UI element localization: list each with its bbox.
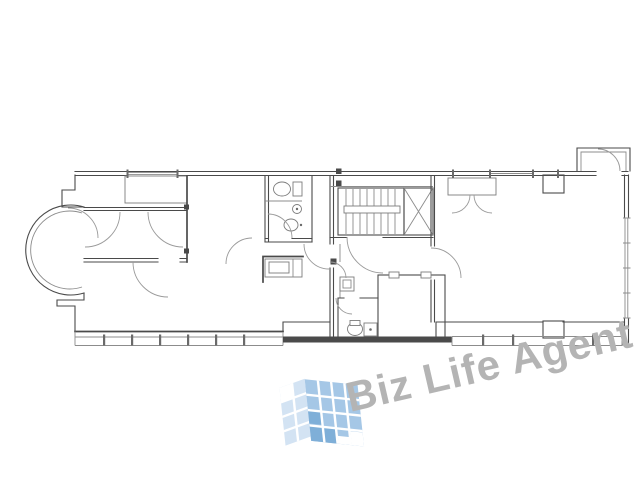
pillar-top xyxy=(543,175,564,193)
elevator xyxy=(404,188,433,235)
window-right-wall xyxy=(623,218,631,318)
round-bay-room xyxy=(26,205,98,295)
wardrobe xyxy=(125,176,187,203)
stair-landing xyxy=(344,206,400,213)
core-bottom-wall xyxy=(283,337,452,343)
floor-plan-drawing: Biz Life Agent xyxy=(0,0,640,480)
wc xyxy=(336,298,378,338)
stair-core xyxy=(283,169,452,343)
living-room-door-arc xyxy=(226,238,252,264)
washstand-icon xyxy=(340,277,354,291)
floor-plan-page: Biz Life Agent xyxy=(0,0,640,480)
entry-door-arc xyxy=(431,248,461,278)
kitchen-counter xyxy=(263,257,303,283)
watermark: Biz Life Agent xyxy=(279,309,637,454)
toilet-icon xyxy=(274,182,291,196)
unit-divider-wall xyxy=(304,176,337,336)
bathroom xyxy=(265,176,312,242)
balcony-top-right xyxy=(577,148,630,171)
right-closet xyxy=(448,178,496,213)
staircase xyxy=(338,188,404,235)
stair-door-arc xyxy=(347,237,383,273)
watermark-text: Biz Life Agent xyxy=(341,309,637,421)
bidet-icon xyxy=(284,219,298,231)
kitchen-sink-icon xyxy=(269,262,289,273)
left-unit xyxy=(75,170,337,346)
